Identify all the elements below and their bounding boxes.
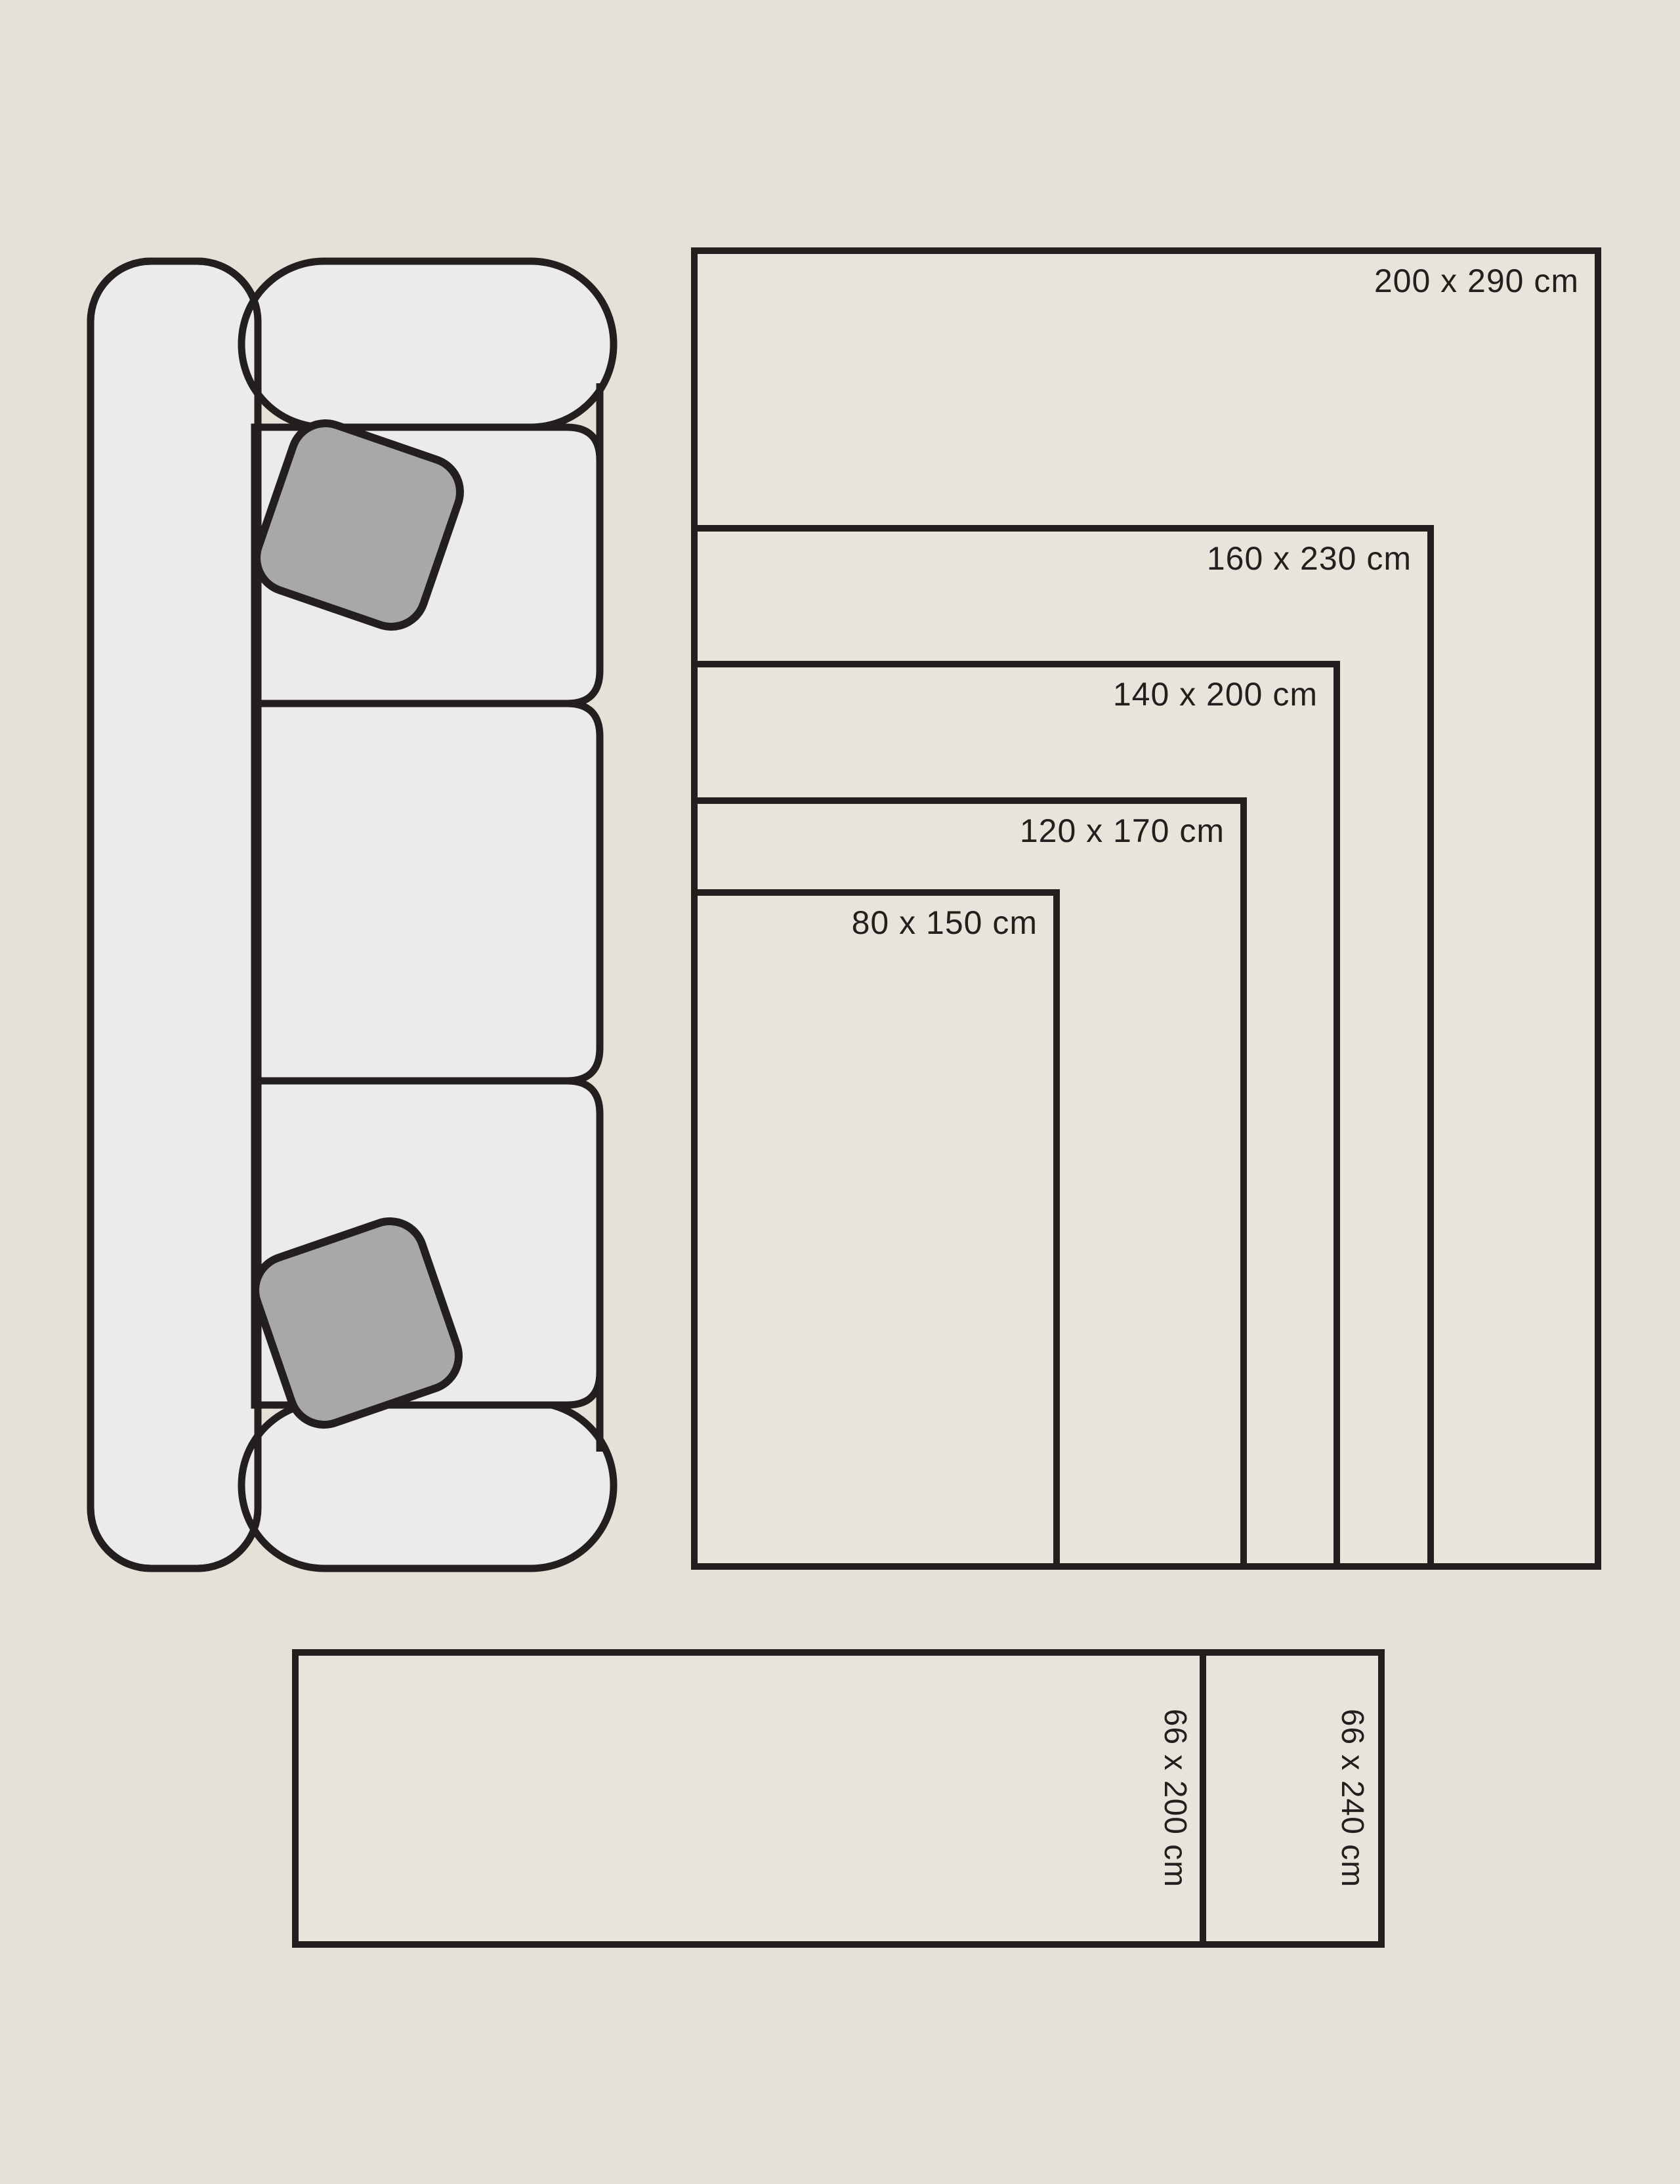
sofa-backrest (91, 261, 258, 1568)
rug-size-guide-diagram: 200 x 290 cm 160 x 230 cm 140 x 200 cm 1… (0, 0, 1680, 2184)
sofa-illustration (0, 0, 1680, 2184)
sofa-armrest-bottom (241, 1402, 614, 1568)
sofa-cushion-2 (255, 703, 600, 1081)
sofa-armrest-top (241, 261, 614, 427)
